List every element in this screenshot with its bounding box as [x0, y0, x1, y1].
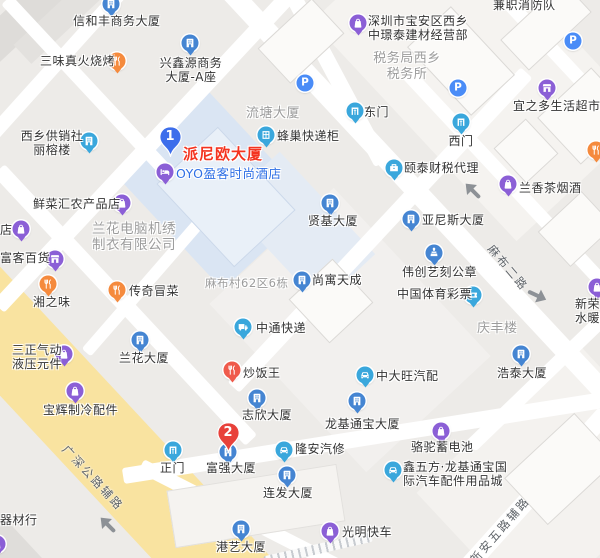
building-icon[interactable]	[233, 521, 250, 538]
poi-label-baohui-refrigeration[interactable]: 宝辉制冷配件	[43, 403, 118, 417]
map-canvas[interactable]: 麻布二路新安五路辅路广深公路辅路 信和丰商务大厦三味真火烧烤兴鑫源商务大厦-A座…	[0, 0, 600, 558]
poi-label-longji-tongbao-tower[interactable]: 龙基通宝大厦	[325, 417, 400, 431]
gate-icon[interactable]	[453, 114, 470, 131]
building-icon[interactable]	[403, 211, 420, 228]
map-pin-marker-2[interactable]: 2	[217, 422, 240, 454]
poi-label-luotuo-battery[interactable]: 骆驼蓄电池	[411, 440, 474, 454]
poi-label-main-gate[interactable]: 正门	[160, 461, 185, 475]
poi-label-qingfeng-building: 庆丰楼	[477, 321, 518, 337]
poi-label-fuke-store[interactable]: 富客百货	[0, 251, 50, 265]
bed-icon[interactable]	[157, 164, 174, 181]
bag-icon[interactable]	[322, 523, 339, 540]
poi-label-qicaihang[interactable]: 器材行	[0, 513, 38, 527]
poi-label-xingxinyuan-tower[interactable]: 兴鑫源商务大厦-A座	[160, 56, 223, 85]
building-icon[interactable]	[103, 0, 120, 13]
poi-label-yanisi-tower[interactable]: 亚尼斯大厦	[422, 213, 485, 227]
bag-icon[interactable]	[13, 221, 30, 238]
locker-icon[interactable]	[258, 127, 275, 144]
truck-icon[interactable]	[235, 319, 252, 336]
poi-label-xiangzhiwei[interactable]: 湘之味	[33, 295, 71, 309]
poi-label-xianji-tower[interactable]: 贤基大厦	[308, 214, 358, 228]
poi-label-dian-shop[interactable]: 店	[0, 223, 13, 237]
poi-label-fengchao-locker[interactable]: 蜂巢快递柜	[277, 129, 340, 143]
poi-label-zhongtong-express[interactable]: 中通快递	[256, 321, 306, 335]
poi-label-east-gate[interactable]: 东门	[364, 105, 389, 119]
parking-icon[interactable]: P	[450, 80, 467, 97]
poi-label-xixiang-gongxiaoshe[interactable]: 西乡供销社丽榕楼	[21, 129, 84, 158]
poi-label-yizhiduo-supermarket[interactable]: 宜之多生活超市	[513, 99, 600, 113]
poi-label-sanwei-bbq[interactable]: 三味真火烧烤	[40, 54, 115, 68]
gate-icon[interactable]	[347, 103, 364, 120]
poi-label-sports-lottery[interactable]: 中国体育彩票	[397, 287, 472, 301]
poi-label-west-gate[interactable]: 西门	[448, 134, 473, 148]
poi-label-chaofanwang[interactable]: 炒饭王	[243, 366, 281, 380]
poi-label-xiancaihui-produce[interactable]: 鲜菜汇农产品店	[33, 197, 121, 211]
poi-label-liutang-tower: 流塘大厦	[246, 106, 300, 122]
poi-label-chuanqi-maocai[interactable]: 传奇冒菜	[129, 284, 179, 298]
parking-icon[interactable]: P	[565, 33, 582, 50]
parking-letter: P	[569, 36, 577, 47]
poi-label-zhongjingtai-materials[interactable]: 深圳市宝安区西乡中璟泰建材经营部	[368, 14, 468, 43]
poi-label-guangming-express[interactable]: 光明快车	[342, 525, 392, 539]
stamp-icon[interactable]	[426, 245, 443, 262]
poi-label-weichuang-seals[interactable]: 伟创艺刻公章	[402, 265, 477, 279]
poi-label-lanhua-tower[interactable]: 兰花大厦	[119, 351, 169, 365]
poi-label-lianfa-tower[interactable]: 连发大厦	[263, 486, 313, 500]
building-icon[interactable]	[322, 195, 339, 212]
poi-label-haotai-tower[interactable]: 浩泰大厦	[497, 366, 547, 380]
building-icon[interactable]	[182, 35, 199, 52]
poi-label-xinwufang-autoparts-city[interactable]: 鑫五方·龙基通宝国际汽车配件用品城	[403, 460, 507, 489]
parking-letter: P	[454, 83, 462, 94]
bag-icon[interactable]	[589, 279, 600, 296]
building-icon[interactable]	[349, 393, 366, 410]
map-pin-marker-1[interactable]: 1	[159, 126, 182, 158]
poi-label-oyo-hotel[interactable]: OYO盈客时尚酒店	[176, 166, 281, 181]
food-icon[interactable]	[588, 142, 600, 159]
bag-icon[interactable]	[350, 15, 367, 32]
poi-label-xinhefeng-tower[interactable]: 信和丰商务大厦	[73, 14, 161, 28]
parking-letter: P	[301, 78, 309, 89]
food-icon[interactable]	[40, 276, 57, 293]
car-icon[interactable]	[276, 442, 293, 459]
building-icon[interactable]	[294, 272, 311, 289]
poi-label-shangyu-tiancheng[interactable]: 尚寓天成	[312, 273, 362, 287]
poi-label-tax-office-area: 税务局西乡税务所	[373, 51, 441, 82]
poi-label-yitai-tax-agency[interactable]: 颐泰财税代理	[404, 161, 479, 175]
building-icon[interactable]	[513, 346, 530, 363]
bag-icon[interactable]	[433, 423, 450, 440]
car-icon[interactable]	[385, 462, 402, 479]
poi-label-mabu-village: 麻布村62区6栋	[205, 277, 288, 291]
poi-label-xinrongchang-plumbing[interactable]: 新荣昌水暖灯	[575, 297, 600, 326]
parking-icon[interactable]: P	[297, 75, 314, 92]
store-icon[interactable]	[539, 80, 556, 97]
poi-label-jianzhi-fire-team[interactable]: 兼职消防队	[493, 0, 556, 12]
bag-icon[interactable]	[67, 383, 84, 400]
gate-icon[interactable]	[165, 442, 182, 459]
building-icon[interactable]	[249, 390, 266, 407]
food-icon[interactable]	[109, 282, 126, 299]
poi-label-sanzheng-pneumatic[interactable]: 三正气动液压元件	[12, 343, 62, 372]
building-icon[interactable]	[132, 332, 149, 349]
poi-label-gangyi-tower[interactable]: 港艺大厦	[216, 540, 266, 554]
car-icon[interactable]	[357, 367, 374, 384]
poi-label-longan-autorepair[interactable]: 隆安汽修	[295, 442, 345, 456]
poi-label-lanxiang-tobacco[interactable]: 兰香茶烟酒	[519, 181, 582, 195]
building-icon[interactable]	[279, 467, 296, 484]
poi-label-fuqiang-tower[interactable]: 富强大厦	[206, 461, 256, 475]
briefcase-icon[interactable]	[386, 160, 403, 177]
poi-label-panio-tower[interactable]: 派尼欧大厦	[183, 145, 263, 163]
poi-label-lanhua-embroidery: 兰花电脑机绣制衣有限公司	[92, 221, 176, 253]
food-icon[interactable]	[224, 362, 241, 379]
poi-label-zhixin-tower[interactable]: 志欣大厦	[242, 408, 292, 422]
poi-label-zhongdawang-autoparts[interactable]: 中大旺汽配	[376, 369, 439, 383]
bag-icon[interactable]	[500, 176, 517, 193]
